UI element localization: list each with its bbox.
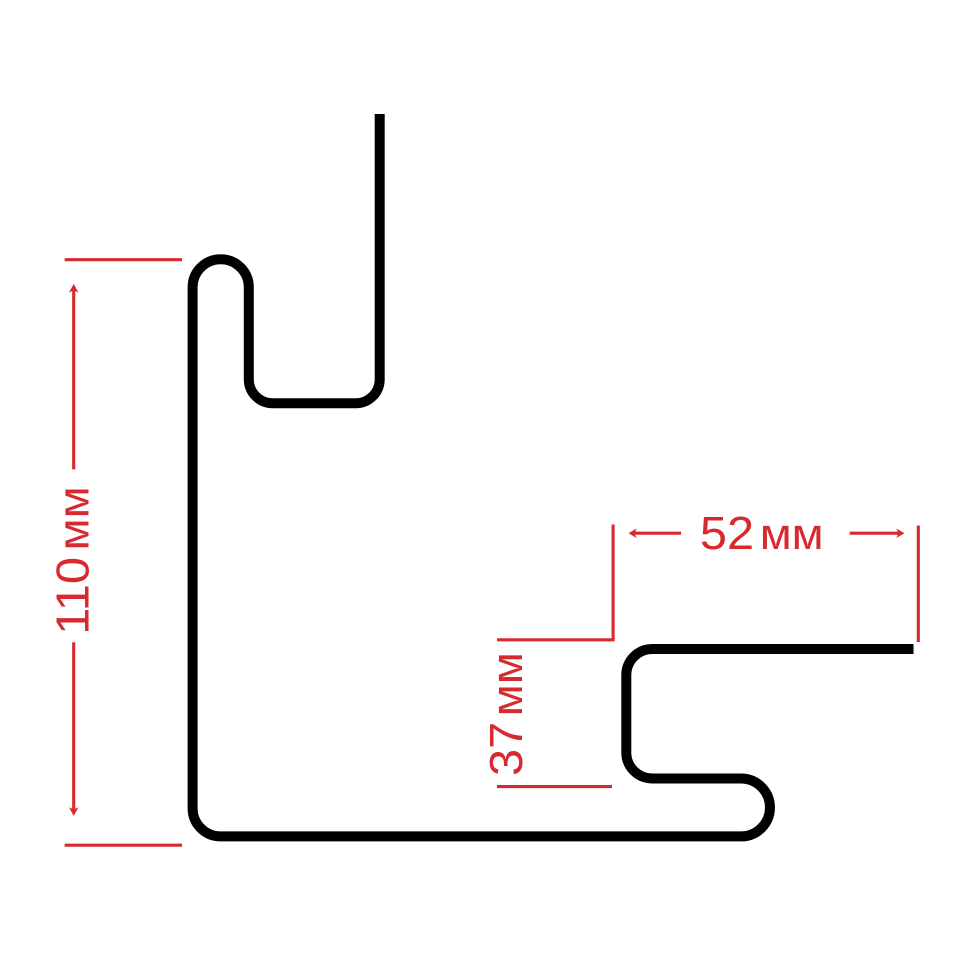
svg-text:52: 52 xyxy=(700,508,754,559)
svg-text:мм: мм xyxy=(760,509,824,558)
svg-text:мм: мм xyxy=(483,652,532,716)
svg-text:мм: мм xyxy=(49,486,98,550)
svg-text:37: 37 xyxy=(481,722,532,776)
svg-text:110: 110 xyxy=(48,557,99,635)
